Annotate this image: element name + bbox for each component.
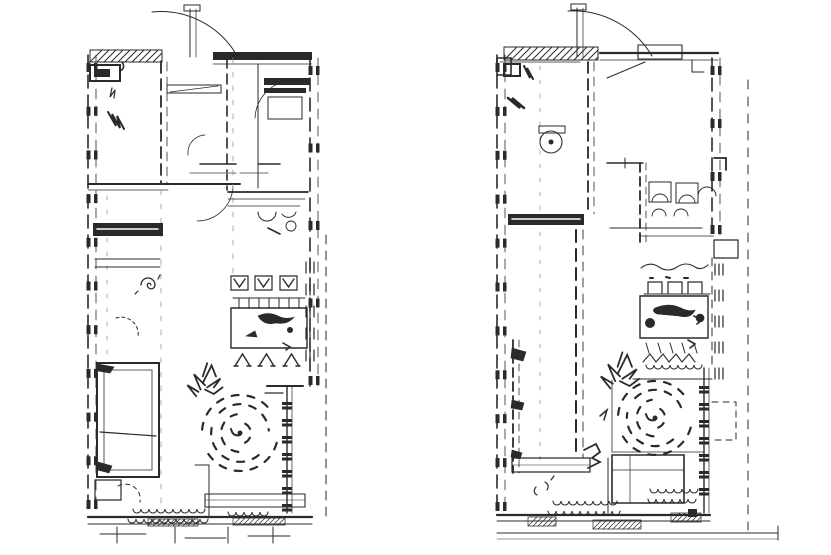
curtain-wave [641,264,708,270]
dot-row [650,277,688,278]
kitchen-sink [258,212,296,221]
balcony-bracket [712,402,736,440]
side-duct-box [714,240,738,258]
bathroom-dark-marks [508,98,524,108]
dining-chair-1 [231,276,248,290]
hall-shelf-diagonal [170,86,218,92]
desk-chair-scribble [584,444,600,468]
dining-chair-6 [283,354,300,366]
dining-radiator [715,264,723,379]
kitchen-faucet [268,228,280,234]
floor-plan-left [87,5,327,543]
dining-chair-3 [280,276,297,290]
kitchen-top-wall [213,52,312,60]
area-rug [618,381,691,455]
left-window-wall [87,55,98,510]
sofa [97,363,159,477]
chair-zigzag [643,354,695,362]
kitchen-worktop-dark [264,78,310,85]
radiator-scallops-a [133,509,205,513]
plant-scribble [187,363,222,396]
sofa-cushion-line [100,432,156,436]
hall-door-swing-small [188,135,205,155]
ceiling-fan-symbol [135,275,160,294]
radiator-scallops-c [228,512,268,516]
kitchen-sink-circle [286,221,296,231]
radiator-scallops-b [128,519,208,523]
sofa [612,455,684,503]
washer-stand [539,126,565,133]
washer-dot [549,140,554,145]
table-mark-b [696,314,704,322]
appliance-2-arc [679,195,695,203]
entry-door-arc [568,11,652,56]
sofa-arm-top [98,364,114,373]
radiator-valve [688,509,697,517]
dining-chair-1 [648,282,662,293]
left-window-wall [496,55,507,512]
dining-chair-3 [688,282,702,293]
dining-rail-ticks [239,298,299,308]
kitchen-appliance [268,97,302,119]
table-item-dot [287,327,293,333]
table-blob-round [645,318,655,328]
chair-feet [646,365,702,369]
entry-door-arc [152,12,236,54]
bathroom-tick [110,88,115,98]
sketch-page [0,0,831,555]
plant-scribble [601,352,639,388]
bathroom-scribble [524,66,533,79]
table-item-small [246,331,257,337]
floor-plans-drawing [0,0,831,555]
dining-chair-2 [255,276,272,290]
dining-chair-5 [258,354,275,366]
sofa-arm-bottom [98,462,112,473]
toilet-scribble [108,112,124,129]
handwritten-mark [534,476,554,495]
kitchen-diagonal [607,62,645,78]
area-rug [202,395,277,471]
entry-door-head [571,4,586,10]
entry-door-head [184,5,200,11]
floor-plan-right [496,4,779,540]
closet-door-swing [116,317,138,337]
table-blob-large [653,305,695,317]
table-centerpiece [258,314,294,324]
rug-side-mark [600,410,607,420]
right-window-wall [711,58,722,235]
appliance-3-arc [698,187,716,196]
side-table [95,480,121,500]
bathroom-vanity-fill [94,69,110,77]
sofa-inner [104,370,152,470]
kitchen-corner-mark [692,60,704,72]
top-wall-hatched [90,50,162,62]
dining-chair-2 [668,282,682,293]
kitchen-door-arc [255,80,296,118]
bottom-radiator-a [528,517,556,526]
top-wall-hatched [504,47,598,60]
appliance-1-arc [652,194,668,202]
dining-chair-4 [234,354,251,366]
table-item-mark [283,343,290,350]
appliance-4-arc [652,209,688,216]
scallops-a [553,501,617,505]
closet-blob-b [511,400,524,410]
scallops-c [650,489,698,493]
